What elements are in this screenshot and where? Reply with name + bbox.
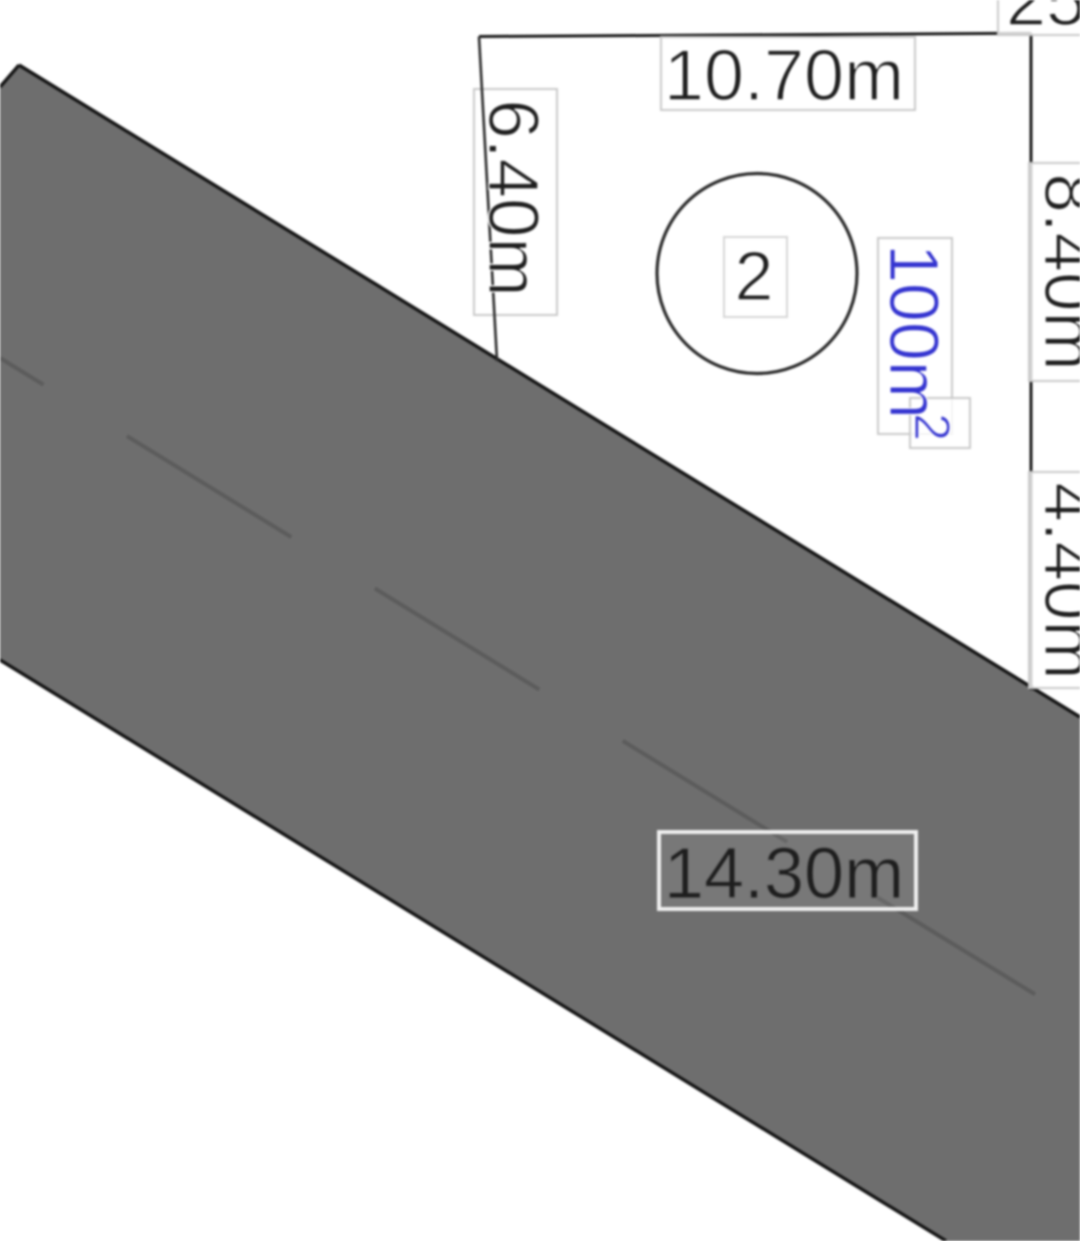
svg-text:2: 2 [735,237,774,315]
svg-text:100m2: 100m2 [875,244,960,441]
svg-text:4.40m: 4.40m [1029,482,1080,679]
svg-text:6.40m: 6.40m [473,99,552,296]
svg-text:8.40m: 8.40m [1029,173,1080,370]
svg-text:25: 25 [1006,0,1080,41]
svg-text:10.70m: 10.70m [664,36,904,116]
svg-text:14.30m: 14.30m [664,834,904,914]
